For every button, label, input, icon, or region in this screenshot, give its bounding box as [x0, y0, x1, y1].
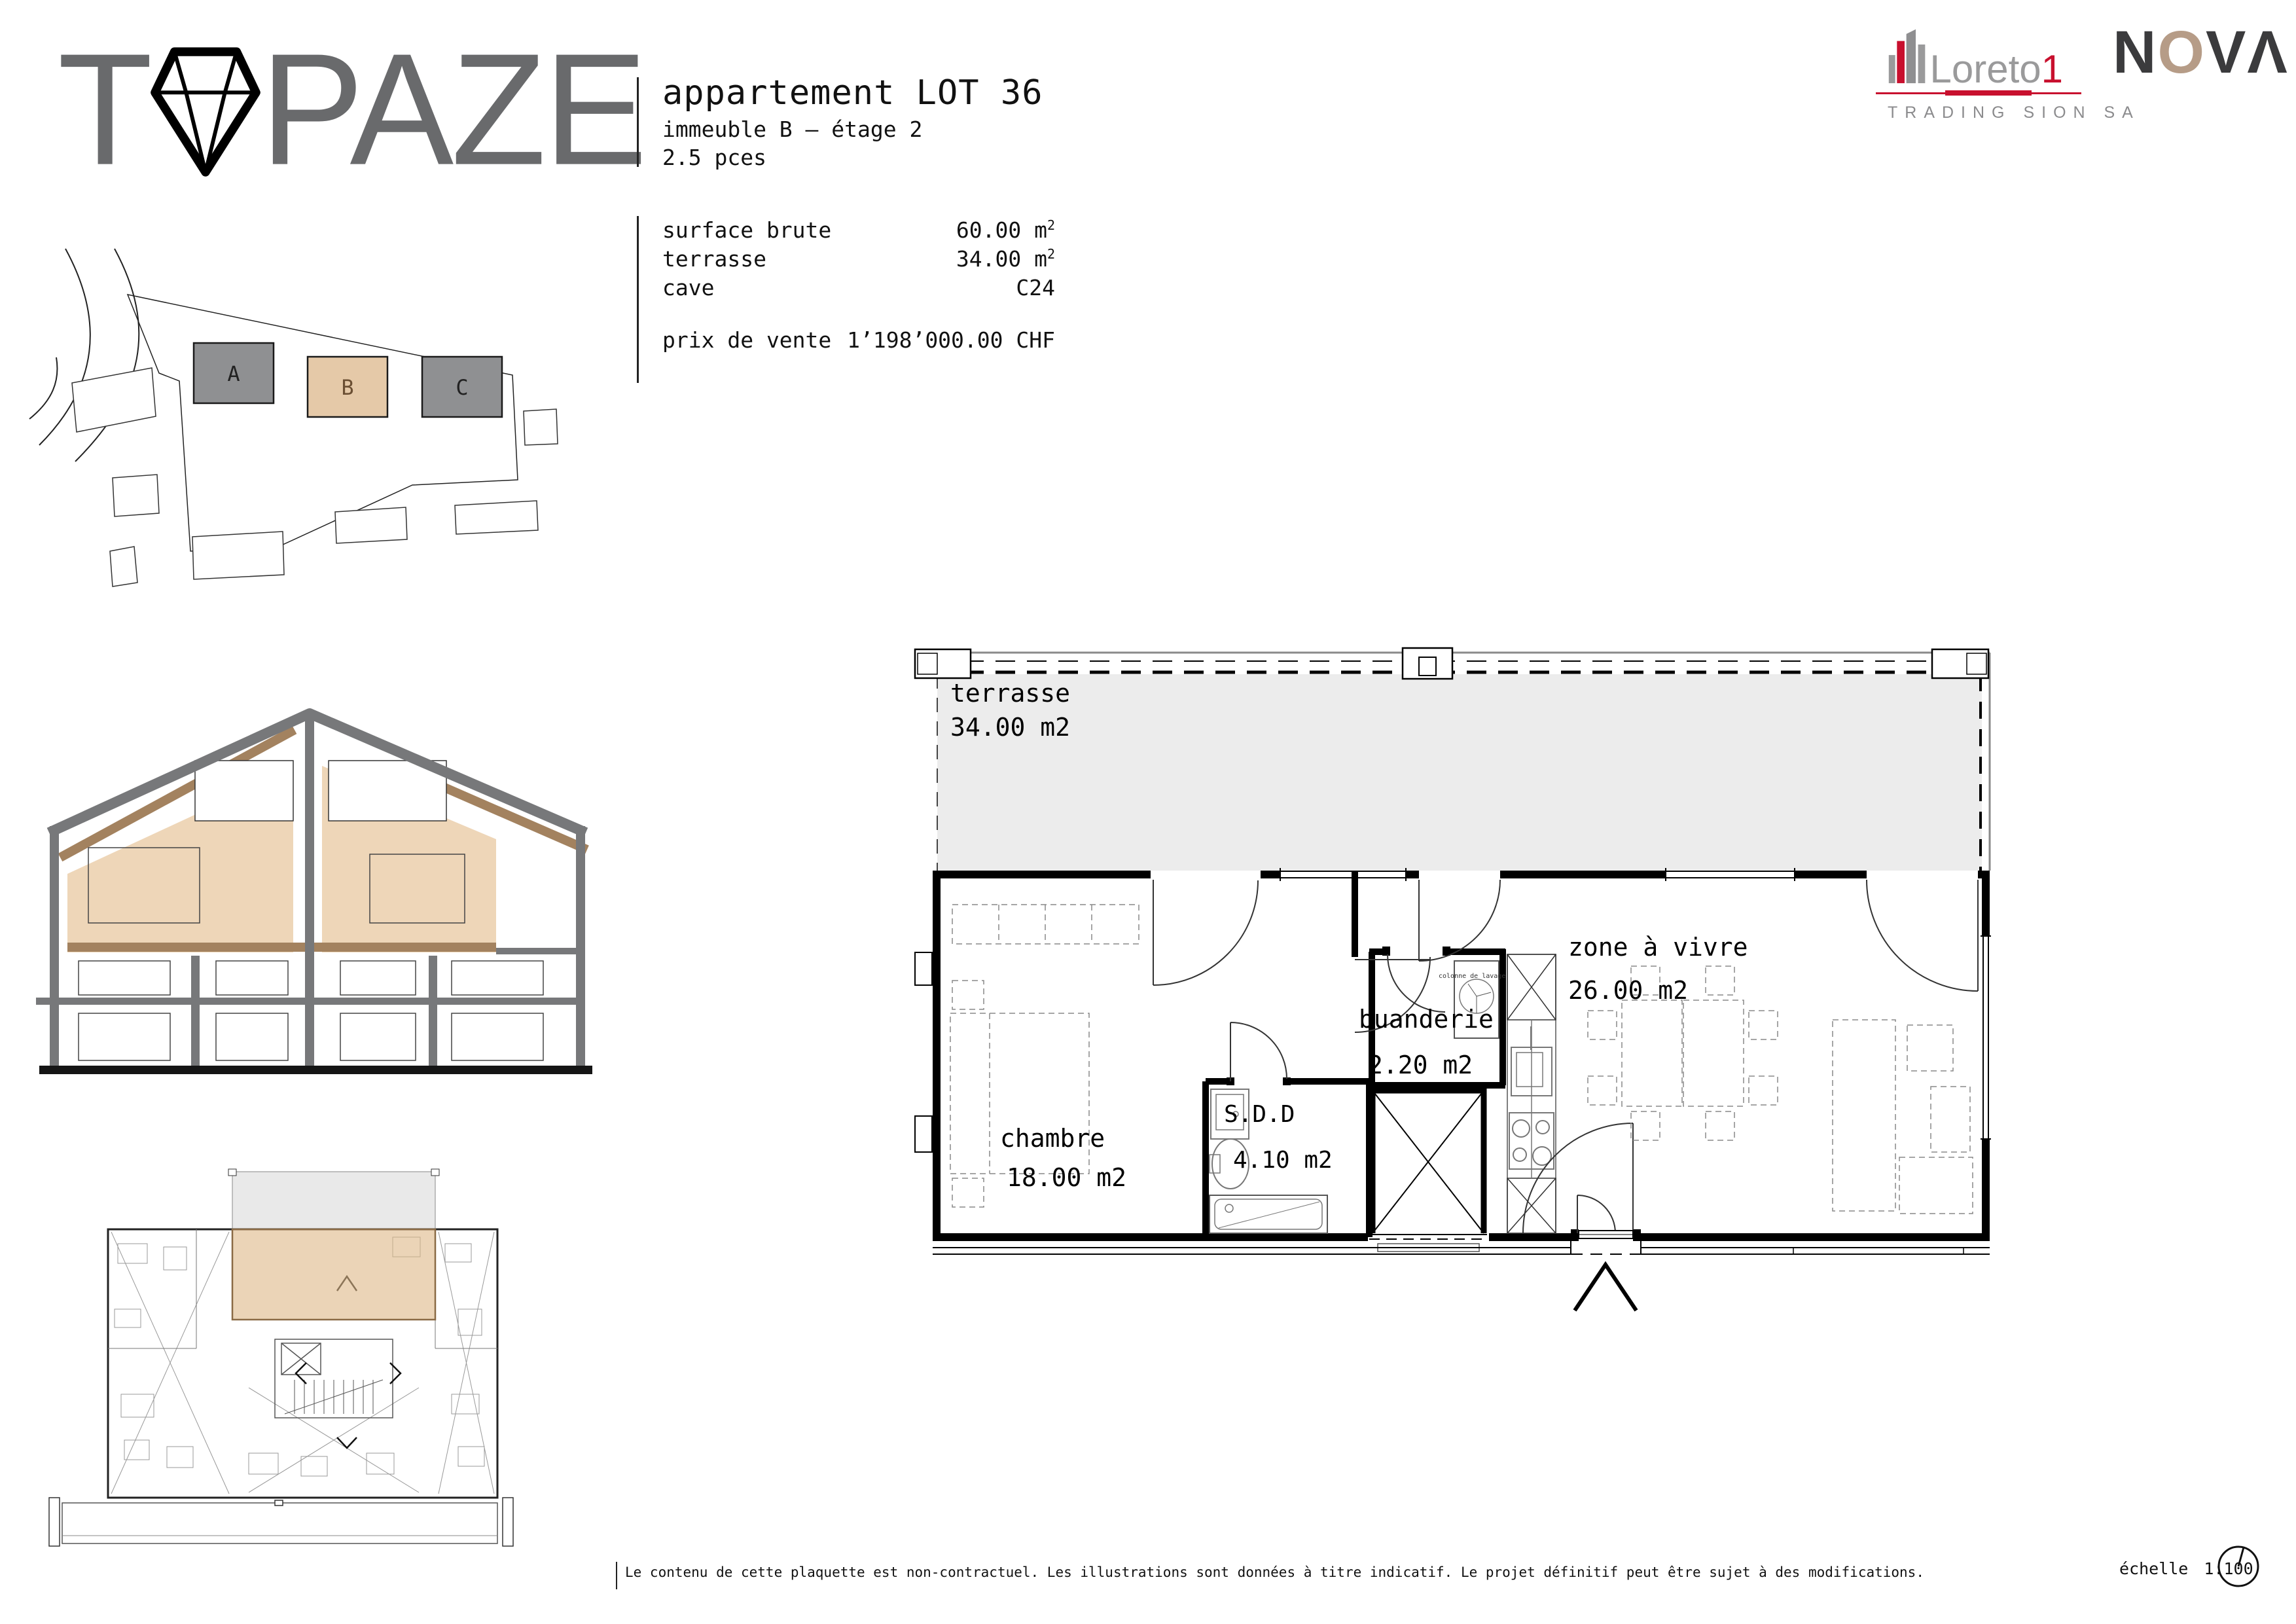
- road-line: [29, 357, 57, 419]
- keyplan-terrace: [232, 1172, 435, 1229]
- spec-row: cave C24: [662, 275, 1055, 304]
- specs-rule: [637, 216, 639, 383]
- brochure-page: { "brand": { "t": "T", "paze": "PAZE" },…: [0, 0, 2296, 1624]
- north-compass-icon: [2216, 1543, 2262, 1589]
- spec-label: cave: [662, 275, 714, 304]
- spec-value: 60.00 m2: [956, 217, 1055, 246]
- bedroom-label: chambre: [1000, 1124, 1105, 1153]
- nova-letter-o: O: [2157, 19, 2206, 86]
- site-plan: A B C: [20, 242, 596, 622]
- wall-pilasters: [915, 952, 932, 1152]
- section-attic-floor: [67, 943, 496, 952]
- topaze-letter-t: T: [58, 30, 150, 190]
- terrace-label: terrasse: [950, 679, 1070, 708]
- bathroom-label: S.D.D: [1224, 1101, 1295, 1128]
- disclaimer-text: Le contenu de cette plaquette est non-co…: [625, 1564, 1924, 1580]
- spec-row: terrasse 34.00 m2: [662, 246, 1055, 275]
- bathroom-area-label: 4.10 m2: [1233, 1147, 1333, 1174]
- loreto-name: Loreto: [1929, 51, 2041, 88]
- spec-label: terrasse: [662, 246, 766, 275]
- spec-value: 34.00 m2: [956, 246, 1055, 275]
- loreto-rule: [1888, 90, 2063, 97]
- loreto-buildings-icon: [1888, 24, 1929, 88]
- bedroom-area-label: 18.00 m2: [1007, 1163, 1126, 1192]
- loreto-one: 1: [2041, 51, 2063, 88]
- disclaimer-rule: [616, 1562, 617, 1589]
- section-dormers: [195, 761, 446, 821]
- laundry-area-label: 2.20 m2: [1368, 1051, 1473, 1079]
- entrance-arrow-icon: [1575, 1265, 1636, 1310]
- building-a-label: A: [227, 361, 240, 386]
- bedroom-furniture: [950, 905, 1139, 1207]
- nova-logo: NOVΛ: [2113, 22, 2289, 82]
- topaze-letters-paze: PAZE: [260, 30, 645, 190]
- key-plan: [36, 1162, 573, 1555]
- rooms-count: 2.5 pces: [662, 145, 766, 170]
- title-rule: [637, 77, 639, 167]
- spec-row: surface brute 60.00 m2: [662, 217, 1055, 246]
- spec-label: surface brute: [662, 217, 831, 246]
- topaze-logo: T PAZE: [58, 31, 645, 190]
- washer-note-label: colonne de lavage: [1439, 973, 1505, 980]
- living-label: zone à vivre: [1568, 933, 1748, 962]
- keyplan-apartment-highlight: [232, 1229, 435, 1320]
- specs-block: surface brute 60.00 m2 terrasse 34.00 m2…: [662, 217, 1055, 353]
- building-section: [36, 704, 599, 1083]
- page-subtitle: immeuble B – étage 2: [662, 117, 922, 142]
- living-area-label: 26.00 m2: [1568, 976, 1688, 1005]
- diamond-icon: [147, 34, 264, 190]
- price-label: prix de vente: [662, 327, 831, 353]
- floor-plan: terrasse 34.00 m2 chambre 18.00 m2 S.D.D…: [910, 622, 1996, 1335]
- elevator-shaft: [1369, 1091, 1487, 1252]
- loreto-tagline: TRADING SION SA: [1888, 103, 2063, 122]
- door-swings: [1153, 880, 1978, 1233]
- page-title: appartement LOT 36: [662, 73, 1043, 113]
- building-b-label: B: [341, 375, 353, 400]
- scale-label: échelle: [2119, 1559, 2188, 1578]
- terrace-area-label: 34.00 m2: [950, 713, 1070, 742]
- keyplan-balcony: [49, 1498, 513, 1546]
- building-c-label: C: [456, 375, 468, 400]
- entrance: [933, 1231, 1990, 1310]
- laundry-label: buanderie: [1359, 1005, 1494, 1034]
- price-value: 1’198’000.00 CHF: [847, 327, 1055, 353]
- price-row: prix de vente 1’198’000.00 CHF: [662, 327, 1055, 353]
- loreto-logo: Loreto1 TRADING SION SA: [1888, 24, 2063, 122]
- terrace-area: [937, 674, 1982, 871]
- spec-value: C24: [1016, 275, 1055, 304]
- section-ground-line: [39, 1066, 592, 1074]
